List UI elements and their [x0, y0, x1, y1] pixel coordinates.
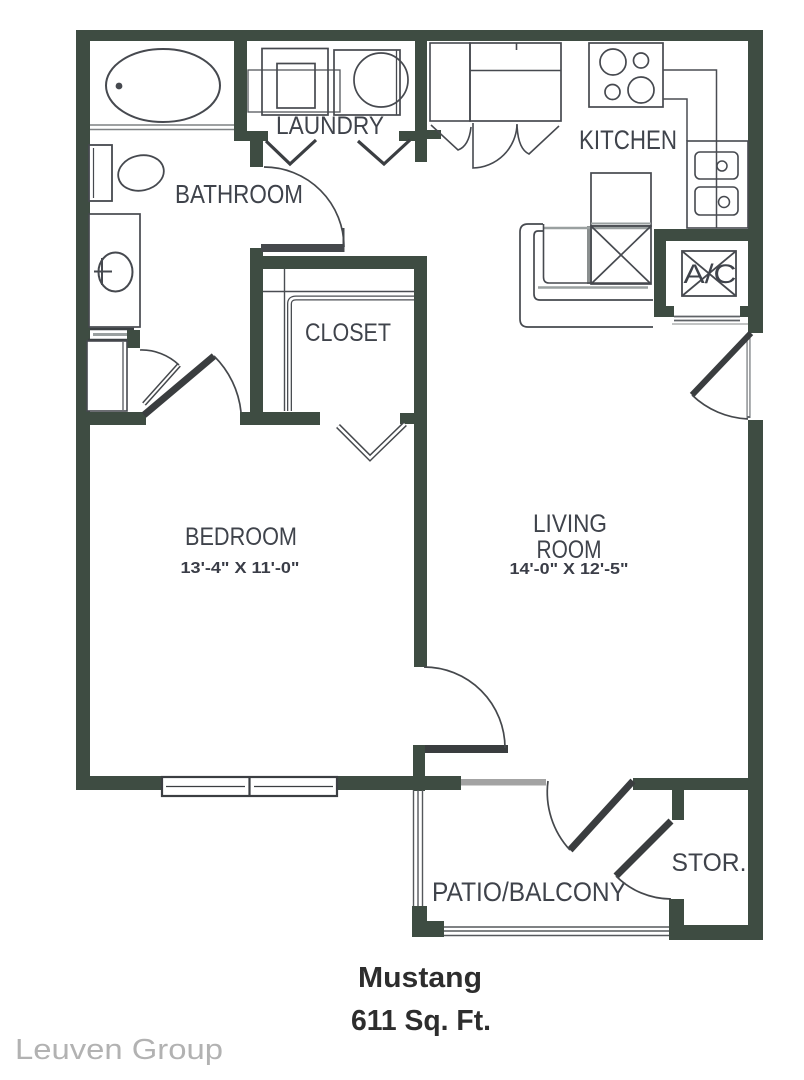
svg-text:BEDROOM: BEDROOM — [185, 523, 297, 551]
svg-text:BATHROOM: BATHROOM — [175, 179, 303, 209]
svg-text:611 Sq. Ft.: 611 Sq. Ft. — [351, 1005, 491, 1037]
svg-text:KITCHEN: KITCHEN — [579, 125, 677, 155]
svg-text:A/C: A/C — [684, 259, 737, 289]
svg-text:LAUNDRY: LAUNDRY — [276, 112, 384, 140]
svg-text:STOR.: STOR. — [672, 849, 747, 877]
svg-text:CLOSET: CLOSET — [305, 319, 391, 347]
svg-text:Leuven Group: Leuven Group — [15, 1034, 223, 1066]
svg-text:Mustang: Mustang — [358, 962, 482, 994]
svg-text:13'-4" X 11'-0": 13'-4" X 11'-0" — [181, 560, 300, 577]
svg-text:ROOM: ROOM — [537, 536, 602, 564]
svg-text:14'-0" X 12'-5": 14'-0" X 12'-5" — [510, 561, 629, 578]
svg-text:PATIO/BALCONY: PATIO/BALCONY — [432, 877, 626, 907]
svg-text:LIVING: LIVING — [533, 510, 607, 538]
